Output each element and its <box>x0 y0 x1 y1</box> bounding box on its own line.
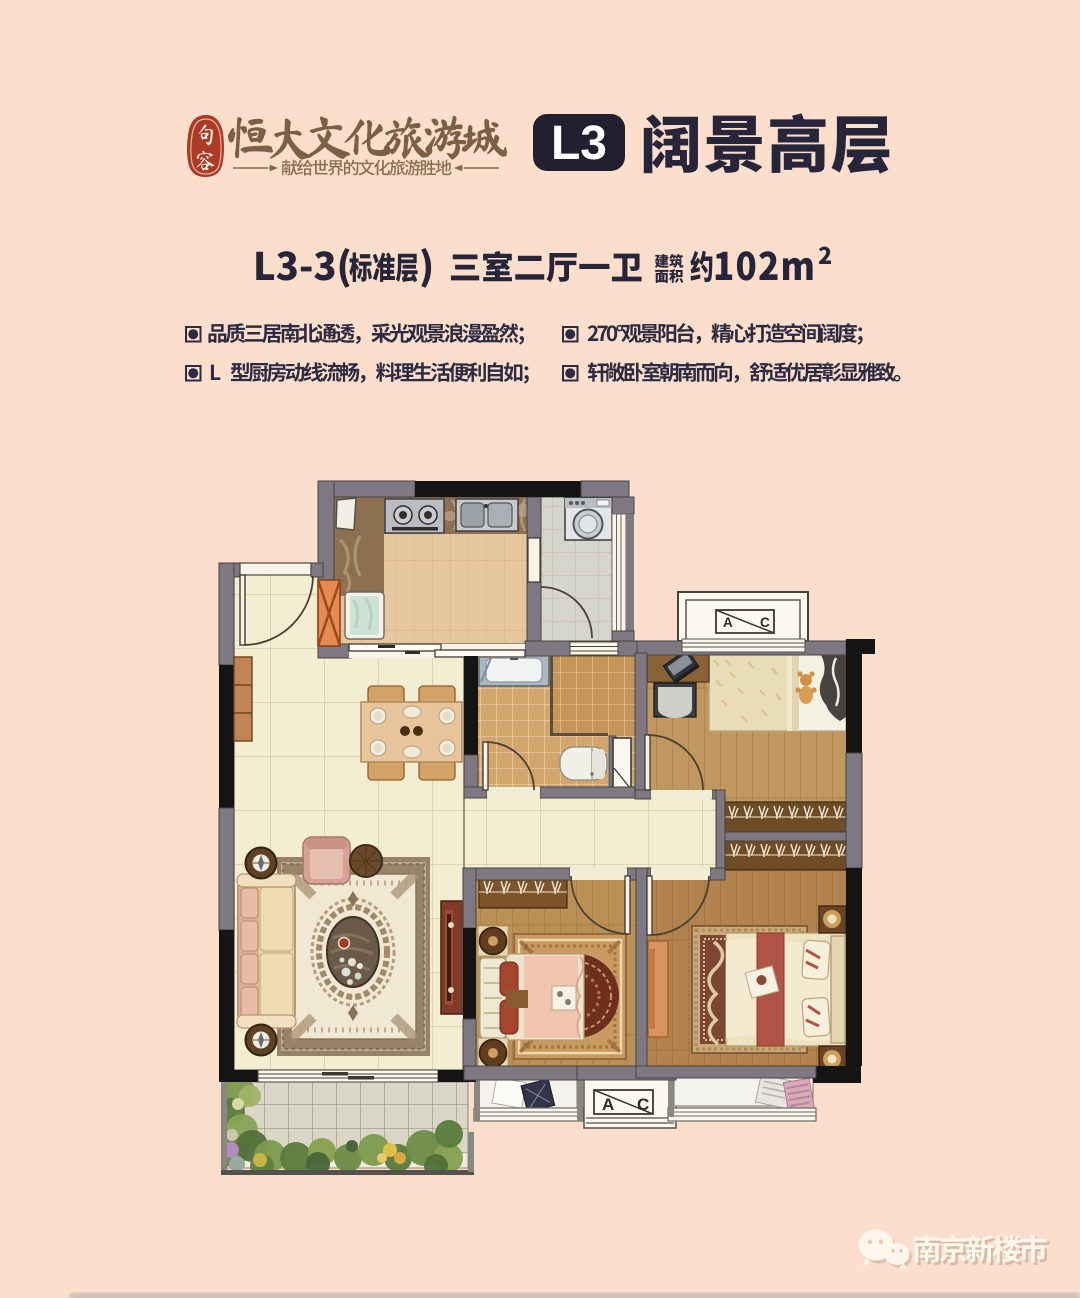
svg-text:C: C <box>760 615 770 630</box>
svg-text:L3: L3 <box>551 117 607 170</box>
svg-text:C: C <box>637 1095 649 1114</box>
svg-text:A: A <box>723 615 733 630</box>
svg-text:A: A <box>602 1095 614 1114</box>
